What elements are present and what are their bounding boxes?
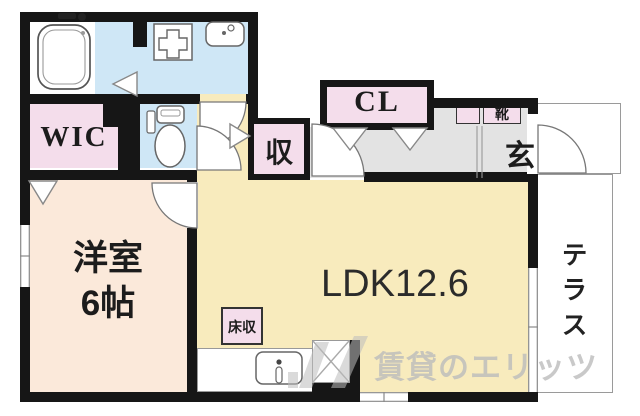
washroom-floor bbox=[95, 22, 248, 94]
wall bbox=[133, 12, 147, 47]
wall bbox=[246, 94, 258, 104]
toilet-floor bbox=[140, 104, 197, 168]
wall bbox=[187, 180, 197, 392]
hall-floor bbox=[197, 94, 248, 180]
floorplan: WIC CL 収 靴 玄 洋室 6帖 LDK12.6 床収 テラス 賃貸のエリッ… bbox=[0, 0, 640, 416]
wall bbox=[350, 340, 360, 392]
cl-label: CL bbox=[325, 85, 429, 119]
ldk-label: LDK12.6 bbox=[300, 263, 490, 306]
wall bbox=[20, 170, 197, 180]
entrance-porch bbox=[535, 103, 621, 174]
window bbox=[360, 392, 408, 402]
wall bbox=[20, 392, 360, 402]
wall bbox=[118, 94, 140, 180]
western-room-label: 洋室 6帖 bbox=[38, 236, 178, 326]
wall bbox=[312, 383, 350, 392]
wall bbox=[20, 12, 30, 402]
watermark-text: 賃貸のエリッツ bbox=[374, 342, 598, 387]
floor-storage-label: 床収 bbox=[221, 317, 263, 337]
storage-label: 収 bbox=[254, 131, 304, 171]
western-room-size: 6帖 bbox=[38, 281, 178, 326]
kitchen-counter bbox=[197, 348, 314, 392]
western-room-name: 洋室 bbox=[38, 236, 178, 281]
wall bbox=[248, 12, 258, 122]
refrigerator-space bbox=[312, 340, 350, 383]
bathroom-floor bbox=[30, 22, 95, 94]
terrace-label: テラス bbox=[552, 228, 592, 358]
wall bbox=[528, 98, 538, 268]
shoe-cabinet-label: 靴 bbox=[483, 104, 521, 124]
wic-label: WIC bbox=[30, 121, 118, 154]
entrance-label: 玄 bbox=[498, 131, 542, 175]
wall bbox=[408, 392, 538, 402]
wall bbox=[20, 94, 200, 104]
